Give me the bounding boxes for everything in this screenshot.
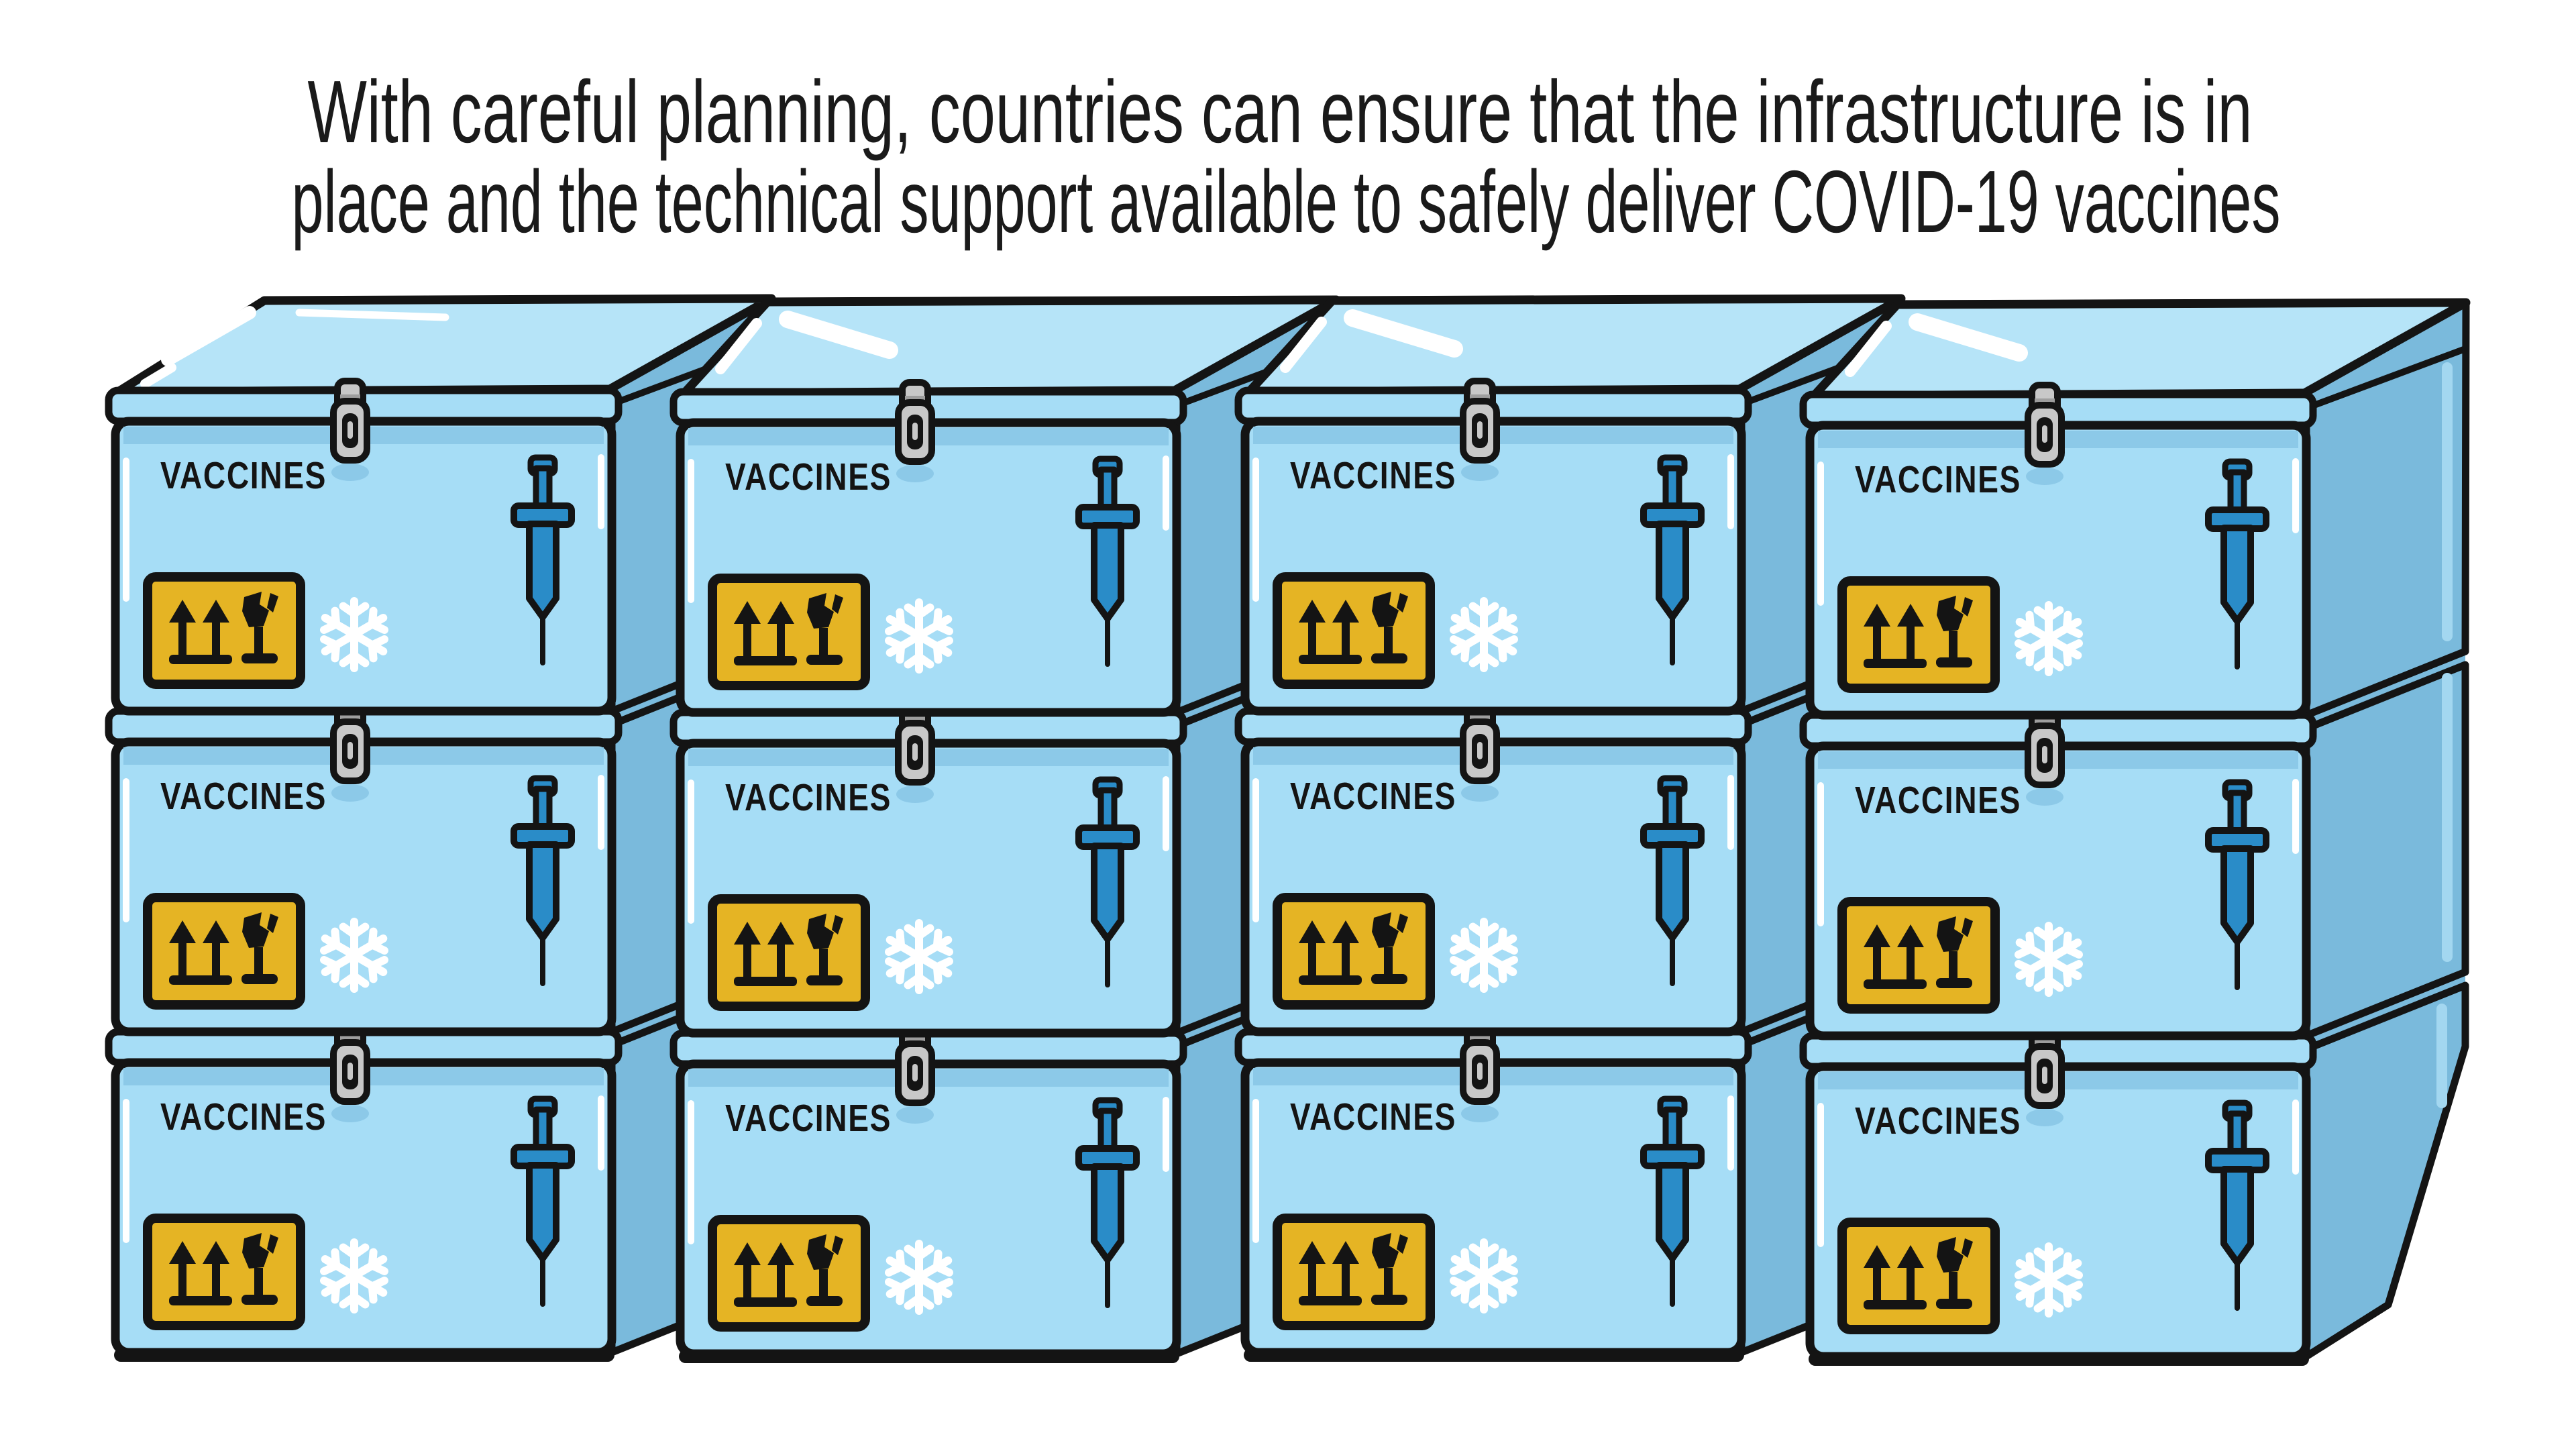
svg-text:place and the technical suppor: place and the technical support availabl… xyxy=(292,152,2281,251)
svg-text:With careful planning, countri: With careful planning, countries can ens… xyxy=(308,62,2253,161)
